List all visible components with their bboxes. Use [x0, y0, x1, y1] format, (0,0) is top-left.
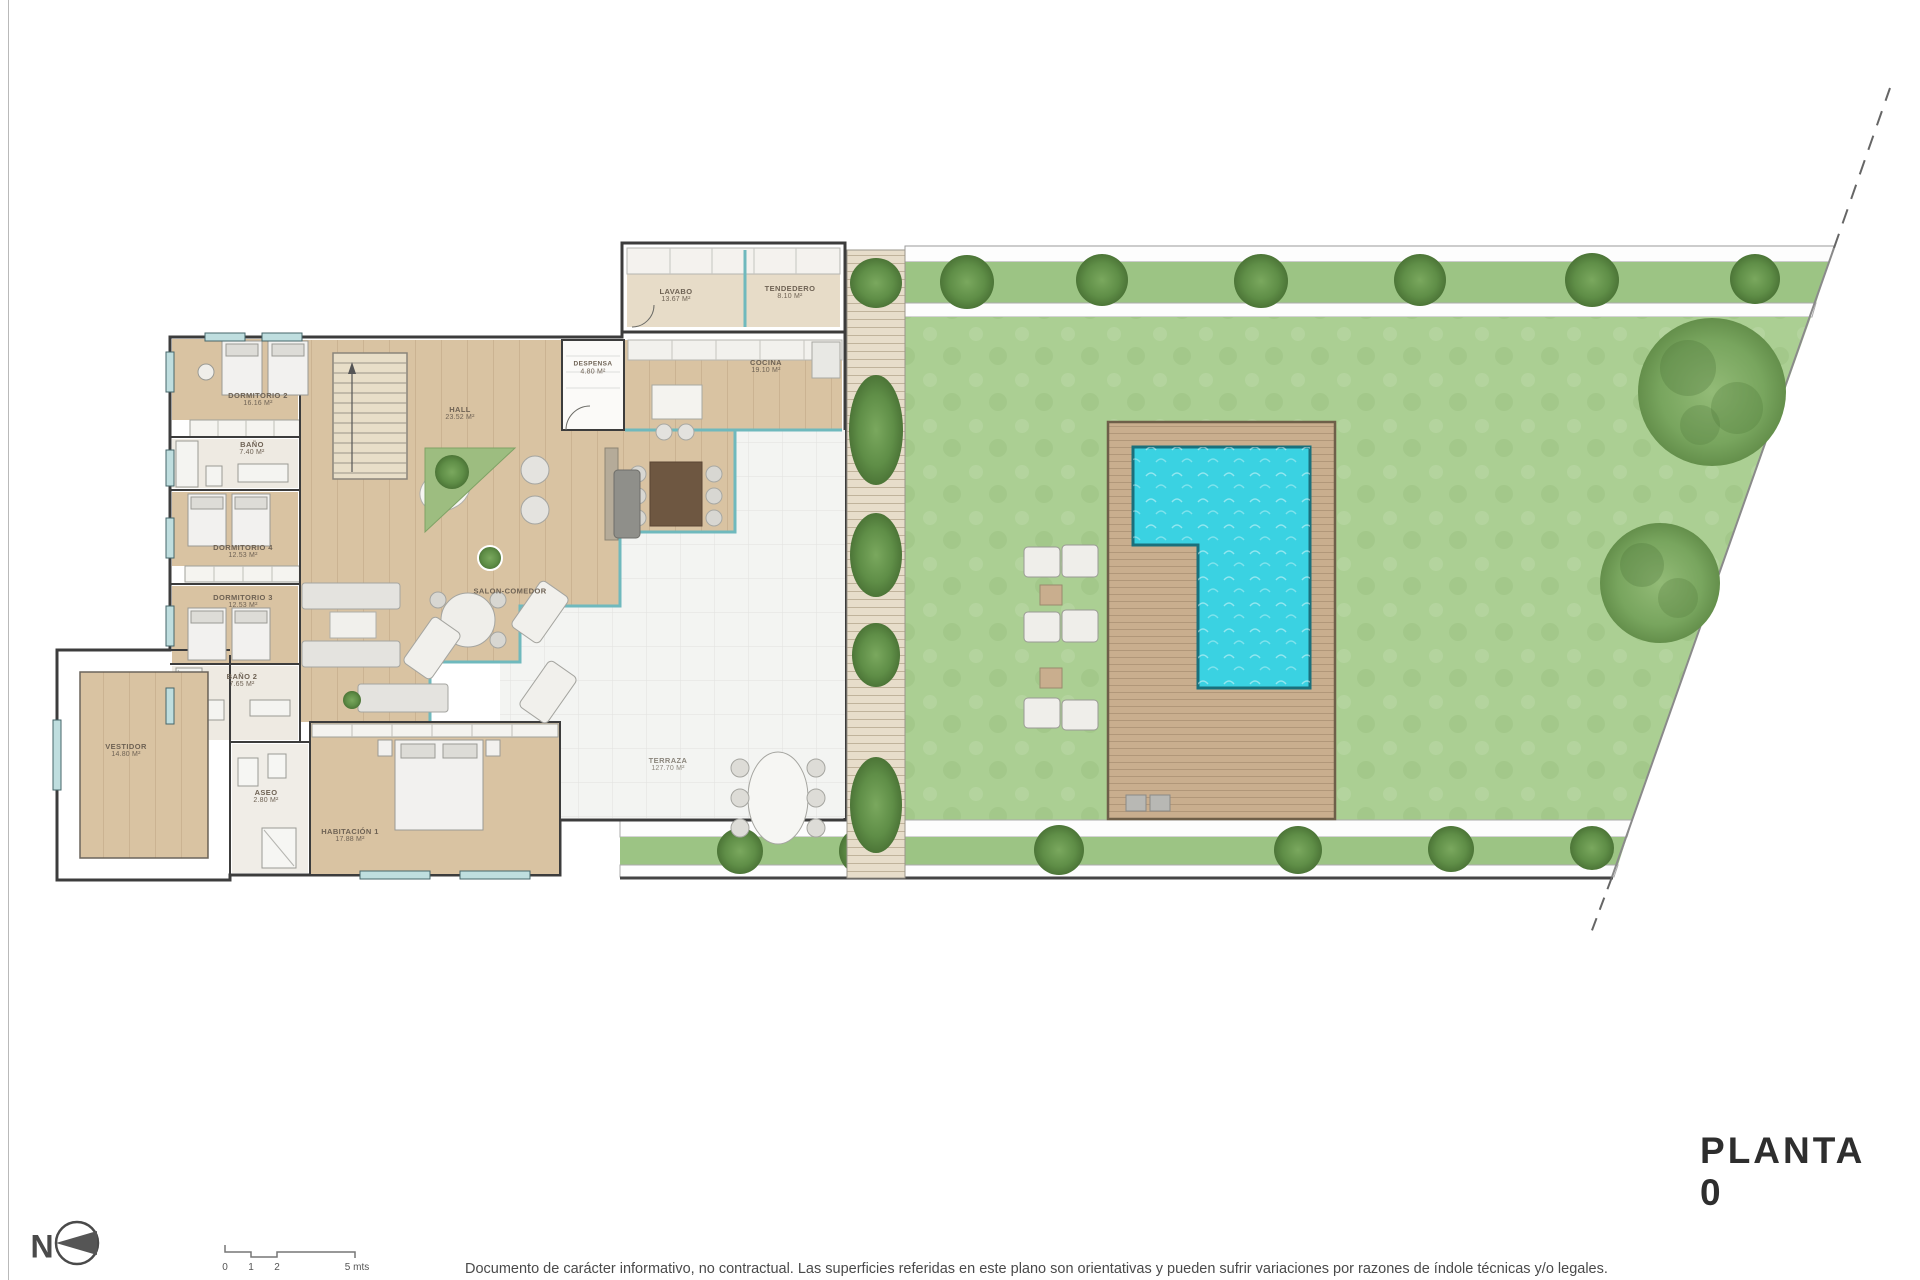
- fridge-icon: [812, 342, 840, 378]
- scale-label-1: 1: [248, 1262, 254, 1273]
- disclaimer-text: Documento de carácter informativo, no co…: [465, 1261, 1865, 1277]
- habitacion1-room: [310, 722, 560, 875]
- staircase: [333, 353, 407, 479]
- sun-lounger-icon: [1062, 545, 1098, 577]
- sun-lounger-icon: [1062, 610, 1098, 642]
- floor-plan-page: LAVABO13.67 M² TENDEDERO8.10 M² DESPENSA…: [0, 0, 1920, 1280]
- garden-top-path: [905, 303, 1816, 317]
- laundry-block: [622, 248, 845, 332]
- kitchen-island: [652, 385, 702, 419]
- garden-top-hedge: [905, 262, 1829, 303]
- boundary-dashed-line-bottom: [1591, 877, 1612, 933]
- plant-icon: [435, 455, 469, 489]
- despensa-room: [562, 340, 624, 430]
- window-icon: [205, 333, 245, 341]
- window-icon: [166, 688, 174, 724]
- sun-lounger-icon: [1024, 698, 1060, 728]
- window-icon: [53, 720, 61, 790]
- window-icon: [166, 352, 174, 392]
- boundary-dashed-line-top: [1834, 88, 1890, 248]
- lounge-chair-icon: [614, 470, 640, 538]
- sofa-icon: [302, 641, 400, 667]
- garden-bottom-path-2: [620, 865, 1618, 877]
- dining-table-icon: [650, 462, 702, 526]
- sun-lounger-icon: [1062, 700, 1098, 730]
- kitchen-counter: [628, 340, 842, 360]
- window-icon: [460, 871, 530, 879]
- stool-icon: [678, 424, 694, 440]
- sun-lounger-icon: [1024, 547, 1060, 577]
- scale-bar: [225, 1245, 355, 1258]
- side-table-icon: [1040, 668, 1062, 688]
- window-icon: [166, 518, 174, 558]
- plant-icon: [343, 691, 361, 709]
- tree-icon-small: [1600, 523, 1720, 643]
- plan-title: PLANTA 0: [1700, 1130, 1864, 1214]
- window-icon: [166, 606, 174, 646]
- sofa-icon: [302, 583, 400, 609]
- aseo-room: [232, 744, 308, 873]
- coffee-table-icon: [330, 612, 376, 638]
- side-planter-strip: [847, 250, 905, 878]
- north-compass-icon: [56, 1222, 98, 1264]
- vestidor-room: [80, 672, 208, 858]
- window-icon: [262, 333, 302, 341]
- garden-top-wall: [905, 246, 1834, 262]
- stool-icon: [656, 424, 672, 440]
- potted-plant-icon: [478, 546, 502, 570]
- scale-label-2: 2: [274, 1262, 280, 1273]
- side-table-icon: [198, 364, 214, 380]
- window-icon: [360, 871, 430, 879]
- north-label: N: [30, 1229, 53, 1266]
- scale-label-0: 0: [222, 1262, 228, 1273]
- window-icon: [166, 450, 174, 486]
- armchair-icon: [521, 496, 549, 524]
- wardrobe-icon: [312, 724, 558, 737]
- outdoor-table-icon: [748, 752, 808, 844]
- scale-label-5: 5 mts: [345, 1262, 369, 1273]
- armchair-icon: [521, 456, 549, 484]
- floor-plan-drawing: [0, 0, 1920, 1280]
- tree-icon-large: [1638, 318, 1786, 466]
- sofa-icon: [358, 684, 448, 712]
- sun-lounger-icon: [1024, 612, 1060, 642]
- side-table-icon: [1040, 585, 1062, 605]
- double-bed-icon: [378, 740, 500, 830]
- house: [53, 243, 845, 880]
